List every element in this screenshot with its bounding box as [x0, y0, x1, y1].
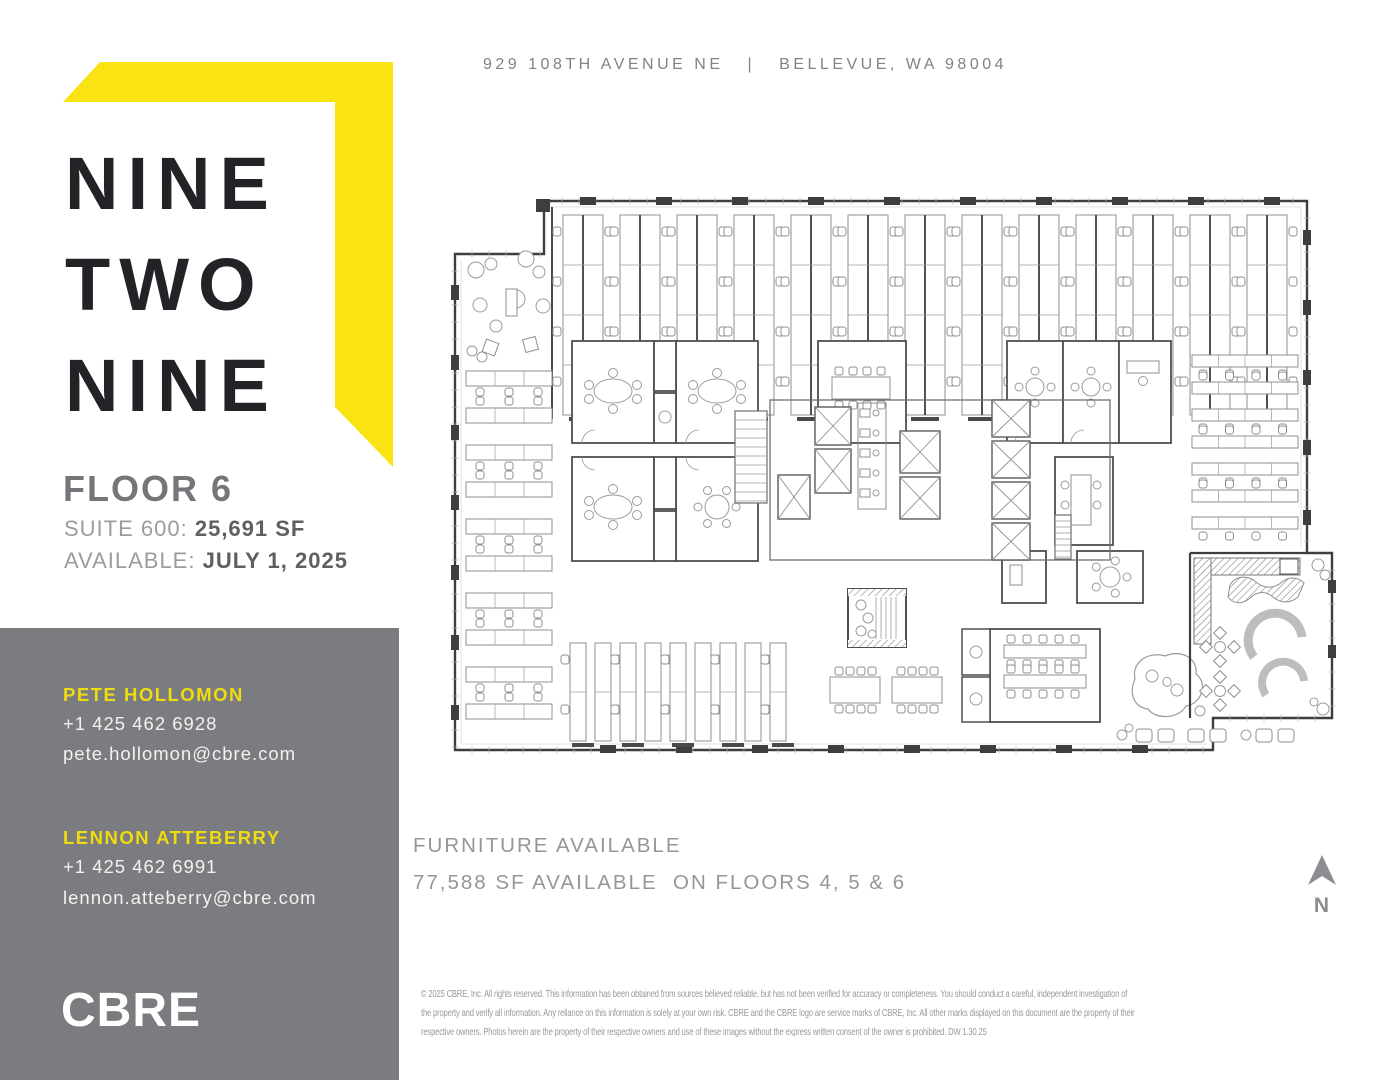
contact-email: lennon.atteberry@cbre.com: [63, 887, 317, 909]
furniture-note: FURNITURE AVAILABLE: [413, 834, 682, 858]
contact-phone: +1 425 462 6928: [63, 713, 217, 735]
header-address: 929 108TH AVENUE NE | BELLEVUE, WA 98004: [483, 56, 1007, 74]
available-line: AVAILABLE: JULY 1, 2025: [64, 548, 348, 574]
floor-plan-drawing: [430, 185, 1340, 785]
available-label: AVAILABLE:: [64, 548, 203, 573]
building-name-line-3: NINE: [65, 349, 278, 423]
open-office-west: [466, 371, 552, 719]
available-date-value: JULY 1, 2025: [203, 548, 348, 573]
sf-availability-note: 77,588 SF AVAILABLE ON FLOORS 4, 5 & 6: [413, 871, 906, 895]
disclaimer-line: respective owners. Photos herein are the…: [421, 1023, 1386, 1042]
address-separator: |: [748, 56, 756, 74]
city-state-zip: BELLEVUE, WA 98004: [779, 56, 1007, 74]
disclaimer-line: the property and verify all information.…: [421, 1004, 1386, 1023]
north-arrow-icon: [1305, 855, 1339, 887]
building-name-line-1: NINE: [65, 147, 278, 221]
cbre-logo: CBRE: [61, 983, 201, 1038]
disclaimer-line: © 2025 CBRE, Inc. All rights reserved. T…: [421, 985, 1386, 1004]
meeting-rooms: [962, 629, 1100, 722]
contact-name: LENNON ATTEBERRY: [63, 827, 281, 849]
disclaimer: © 2025 CBRE, Inc. All rights reserved. T…: [421, 985, 1386, 1060]
suite-size-value: 25,691 SF: [195, 516, 306, 541]
suite-label: SUITE 600:: [64, 516, 195, 541]
floor-title: FLOOR 6: [63, 468, 233, 510]
contact-phone: +1 425 462 6991: [63, 856, 217, 878]
compass-label: N: [1302, 894, 1342, 918]
open-office-south: [561, 643, 794, 747]
contact-name: PETE HOLLOMON: [63, 684, 244, 706]
building-name-line-2: TWO: [65, 248, 265, 322]
street-address: 929 108TH AVENUE NE: [483, 56, 724, 74]
north-compass: N: [1302, 855, 1342, 918]
suite-line: SUITE 600: 25,691 SF: [64, 516, 305, 542]
contact-email: pete.hollomon@cbre.com: [63, 743, 296, 765]
flyer-page: 929 108TH AVENUE NE | BELLEVUE, WA 98004…: [0, 0, 1397, 1080]
